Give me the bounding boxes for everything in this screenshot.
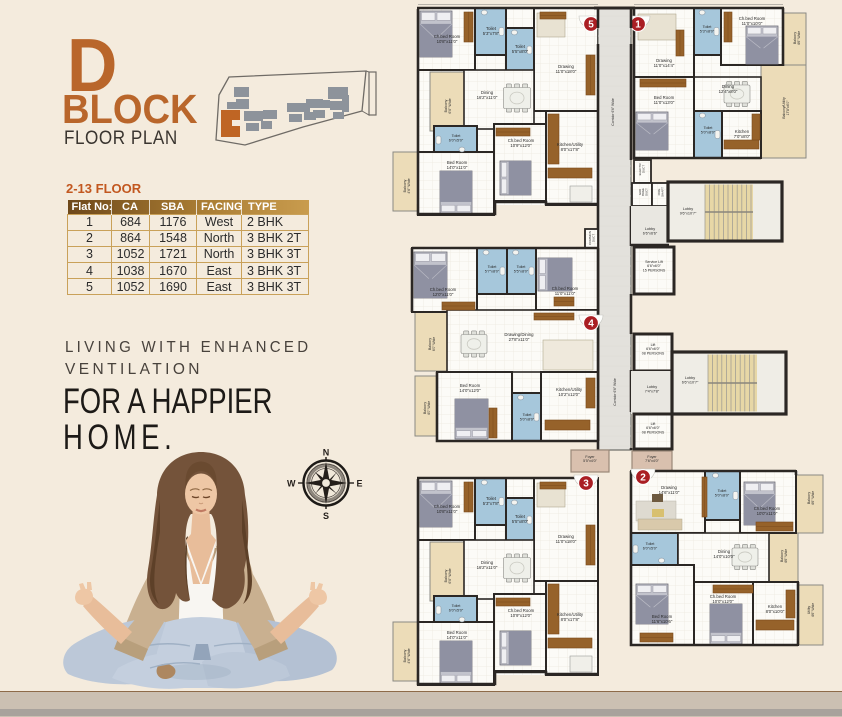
svg-text:Ch.bed Room11'0"x11'0": Ch.bed Room11'0"x11'0": [552, 286, 579, 296]
svg-text:GARBAGEDUCT: GARBAGEDUCT: [638, 188, 648, 196]
svg-text:Corridor 6'6" Wide: Corridor 6'6" Wide: [613, 378, 617, 406]
svg-text:Balcony4'0" Wide: Balcony4'0" Wide: [423, 401, 431, 415]
svg-text:Kitchen8'0"x10'0": Kitchen8'0"x10'0": [766, 604, 785, 614]
svg-text:Drawing11'0"x18'0": Drawing11'0"x18'0": [556, 64, 577, 74]
svg-text:Drawing14'6"x11'0": Drawing14'6"x11'0": [659, 485, 680, 495]
svg-text:Balcony4'6" Wide: Balcony4'6" Wide: [403, 178, 411, 193]
svg-text:3: 3: [583, 478, 589, 489]
svg-text:Ch.bed Room10'0"x12'0": Ch.bed Room10'0"x12'0": [710, 594, 737, 604]
svg-text:Balcony4'6" Wide: Balcony4'6" Wide: [780, 549, 788, 563]
svg-text:N: N: [323, 448, 330, 458]
svg-text:Drawing11'0"x18'0": Drawing11'0"x18'0": [556, 534, 577, 544]
svg-text:Balcony6'0" Wide: Balcony6'0" Wide: [444, 98, 452, 113]
svg-text:1: 1: [635, 19, 641, 30]
svg-text:Balcony4'6" Wide: Balcony4'6" Wide: [793, 31, 801, 45]
svg-text:4: 4: [588, 318, 594, 329]
svg-text:Bed Room14'0"x11'0": Bed Room14'0"x11'0": [447, 630, 468, 640]
svg-text:Balcony6'0" Wide: Balcony6'0" Wide: [428, 337, 436, 351]
svg-text:E: E: [357, 478, 363, 488]
svg-text:Ch.bed Room12'0"x11'0": Ch.bed Room12'0"x11'0": [430, 287, 457, 297]
svg-text:Ch.bed Room10'8"x11'0": Ch.bed Room10'8"x11'0": [434, 504, 461, 514]
svg-text:Ch.bed Room11'0"x10'0": Ch.bed Room11'0"x10'0": [739, 16, 766, 26]
svg-text:Drawing11'0"x14'4": Drawing11'0"x14'4": [654, 58, 675, 68]
svg-text:W: W: [287, 478, 296, 488]
svg-text:Bed Room11'0"x13'0": Bed Room11'0"x13'0": [654, 95, 675, 105]
svg-text:Bed Room14'0"x12'0": Bed Room14'0"x12'0": [459, 383, 481, 393]
svg-text:Balcony4'6" Wide: Balcony4'6" Wide: [403, 648, 411, 663]
svg-text:Bed Room14'0"x11'0": Bed Room14'0"x11'0": [447, 160, 468, 170]
svg-text:Bed Room11'6"x10'6": Bed Room11'6"x10'6": [652, 614, 673, 624]
svg-text:Ch.bed Room10'0"x11'0": Ch.bed Room10'0"x11'0": [754, 506, 781, 516]
svg-text:S: S: [323, 511, 329, 521]
svg-text:Kitchen/Utility10'2"x12'0": Kitchen/Utility10'2"x12'0": [556, 387, 583, 397]
svg-text:Kitchen7'0"x8'0": Kitchen7'0"x8'0": [734, 129, 751, 139]
svg-text:Ch.bed Room10'9"x12'0": Ch.bed Room10'9"x12'0": [508, 608, 535, 618]
svg-text:Balcony4'6" Wide: Balcony4'6" Wide: [807, 491, 815, 505]
svg-text:Ch.bed Room10'9"x12'0": Ch.bed Room10'9"x12'0": [508, 138, 535, 148]
svg-text:Balcony6'0" Wide: Balcony6'0" Wide: [444, 568, 452, 583]
svg-text:5: 5: [588, 19, 594, 30]
svg-text:Ch.bed Room10'8"x11'0": Ch.bed Room10'8"x11'0": [434, 34, 461, 44]
svg-text:Corridor 6'6" Wide: Corridor 6'6" Wide: [611, 98, 615, 126]
svg-text:2: 2: [640, 472, 646, 483]
